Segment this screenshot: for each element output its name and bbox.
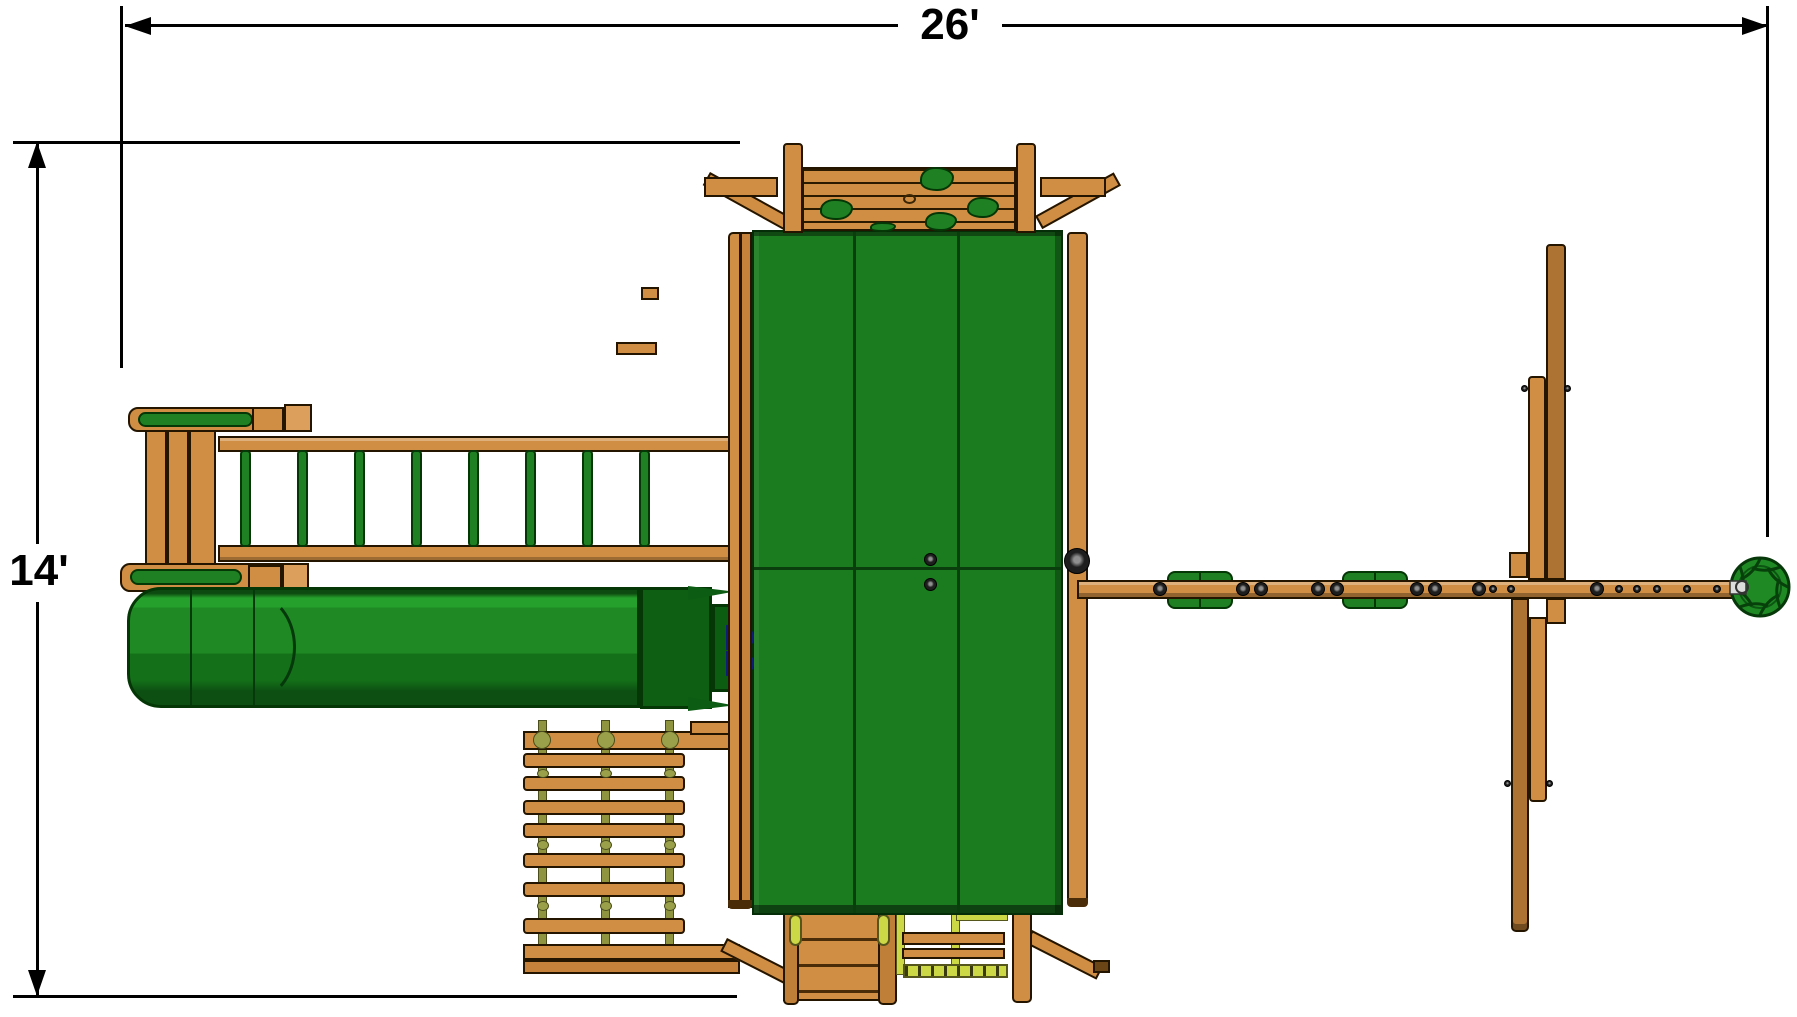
monkey-bar-rung (468, 450, 479, 547)
extension-line-right-vertical (1766, 6, 1769, 537)
tower-left-rail-cap (728, 900, 752, 909)
height-dimension-label: 14' (1, 549, 77, 593)
canopy-tarp (752, 230, 1063, 915)
swing-beam-bolt-small (1653, 585, 1661, 593)
monkey-bar-rung (525, 450, 536, 547)
monkey-bar-rung (411, 450, 422, 547)
swing-beam-bolt (1153, 582, 1167, 596)
rope-ladder-slat (523, 882, 685, 897)
aframe-post-lower-inner (1529, 617, 1547, 802)
rope-knot (600, 840, 612, 850)
climb-wall-post-left (783, 143, 803, 233)
width-dimension-line-left-segment (125, 24, 898, 27)
swing-beam-bolt-small (1683, 585, 1691, 593)
beam-anchor-bolt (924, 553, 937, 566)
width-dimension-label: 26' (880, 3, 1020, 47)
stairs-brace-tip (1093, 960, 1110, 973)
aframe-bolt (1521, 385, 1528, 392)
aframe-block (1509, 552, 1528, 578)
canopy-seam-vertical (957, 232, 960, 913)
tube-slide-seam (190, 590, 192, 705)
swing-beam-bolt (1472, 582, 1486, 596)
stairs-right-post (1012, 913, 1032, 1003)
beam-anchor-bolt (924, 578, 937, 591)
rope-knot (537, 901, 549, 911)
canopy-seam-vertical (853, 232, 856, 913)
swing-beam-bolt-small (1507, 585, 1515, 593)
stairs-ladder-rung (902, 932, 1005, 945)
rope-ladder-slat (523, 776, 685, 791)
aframe-bolt (1504, 780, 1511, 787)
monkey-bars-top-rail (218, 436, 742, 452)
swing-beam-bolt (1410, 582, 1424, 596)
height-dimension-line-top-segment (36, 142, 39, 544)
rope-ladder-slat (523, 753, 685, 768)
grab-handle-top (138, 412, 253, 427)
rope-knot (600, 901, 612, 911)
end-cap-block (252, 407, 284, 432)
swing-beam-bolt-small (1489, 585, 1497, 593)
rock-hold-ring (903, 194, 916, 204)
rope-ladder-bottom-rail (523, 944, 740, 960)
stairs-brace-right (1025, 930, 1103, 980)
tower-left-rail-inner (740, 232, 752, 908)
tower-peg (641, 287, 659, 300)
width-dimension-line-right-segment (1002, 24, 1768, 27)
climb-wall-brace-left-bar (704, 177, 778, 197)
extension-line-bottom-horizontal (13, 995, 737, 998)
beam-mount-knob (1064, 548, 1090, 574)
stairs-ladder-rope-rung (903, 964, 1008, 978)
aframe-bolt (1546, 780, 1553, 787)
aframe-post-upper (1546, 244, 1566, 580)
spinner-wheel (1728, 555, 1792, 619)
monkey-bars-end-post (145, 428, 167, 568)
canopy-seam-horizontal (754, 567, 1061, 570)
rope-knob (533, 731, 551, 749)
tower-right-rail-cap (1067, 898, 1088, 907)
swing-beam-bolt-small (1615, 585, 1623, 593)
rope-knot (664, 769, 676, 778)
rope-ladder-bottom-rail (523, 960, 740, 974)
monkey-bar-rung (354, 450, 365, 547)
monkey-bars-bottom-rail (218, 545, 742, 562)
aframe-bolt (1564, 385, 1571, 392)
playset-top-view-diagram: 26' 14' (0, 0, 1797, 1017)
grab-handle-bottom (130, 569, 242, 585)
width-arrow-left (125, 17, 151, 35)
rope-ladder-slat (523, 800, 685, 815)
rope-knob (597, 731, 615, 749)
monkey-bar-rung (240, 450, 251, 547)
tower-peg (616, 342, 657, 355)
rope-knot (664, 840, 676, 850)
swing-beam-bolt (1254, 582, 1268, 596)
height-dimension-line-bottom-segment (36, 602, 39, 996)
swing-beam-bolt-small (1633, 585, 1641, 593)
monkey-bars-end-post (189, 428, 216, 568)
tube-slide-dome-arc (210, 593, 296, 701)
swing-beam-bolt-small (1713, 585, 1721, 593)
aframe-post-lower (1511, 598, 1529, 932)
height-arrow-top (28, 142, 46, 168)
stairs-rope-hook (789, 914, 802, 946)
end-cap-block (284, 404, 312, 432)
climb-wall-post-right (1016, 143, 1036, 233)
rope-ladder-slat (523, 918, 685, 934)
monkey-bars-end-post (167, 428, 189, 568)
height-arrow-bottom (28, 970, 46, 996)
aframe-block (1546, 598, 1566, 624)
swing-beam-bolt (1236, 582, 1250, 596)
rope-knot (537, 769, 549, 778)
tube-slide-body (127, 587, 640, 708)
monkey-bar-rung (297, 450, 308, 547)
climb-wall-brace-right-bar (1040, 177, 1106, 197)
width-arrow-right (1742, 17, 1768, 35)
rope-ladder-slat (523, 823, 685, 838)
rope-ladder-mount-block (690, 721, 732, 735)
rope-knob (661, 731, 679, 749)
monkey-bar-rung (639, 450, 650, 547)
rope-knot (537, 840, 549, 850)
rope-knot (600, 769, 612, 778)
swing-beam-bolt (1590, 582, 1604, 596)
rope-ladder-slat (523, 853, 685, 868)
tube-slide-section-dark (640, 587, 712, 709)
swing-beam-bolt (1428, 582, 1442, 596)
extension-line-left-vertical (120, 6, 123, 368)
stairs-ladder-rung (902, 948, 1005, 959)
swing-beam-bolt (1311, 582, 1325, 596)
swing-beam-bolt (1330, 582, 1344, 596)
monkey-bar-rung (582, 450, 593, 547)
rope-knot (664, 901, 676, 911)
aframe-post-upper-inner (1528, 376, 1546, 580)
spinner-wheel-graphic (1728, 555, 1792, 619)
extension-line-top-horizontal (13, 141, 740, 144)
stairs-rope-hook (877, 914, 890, 946)
